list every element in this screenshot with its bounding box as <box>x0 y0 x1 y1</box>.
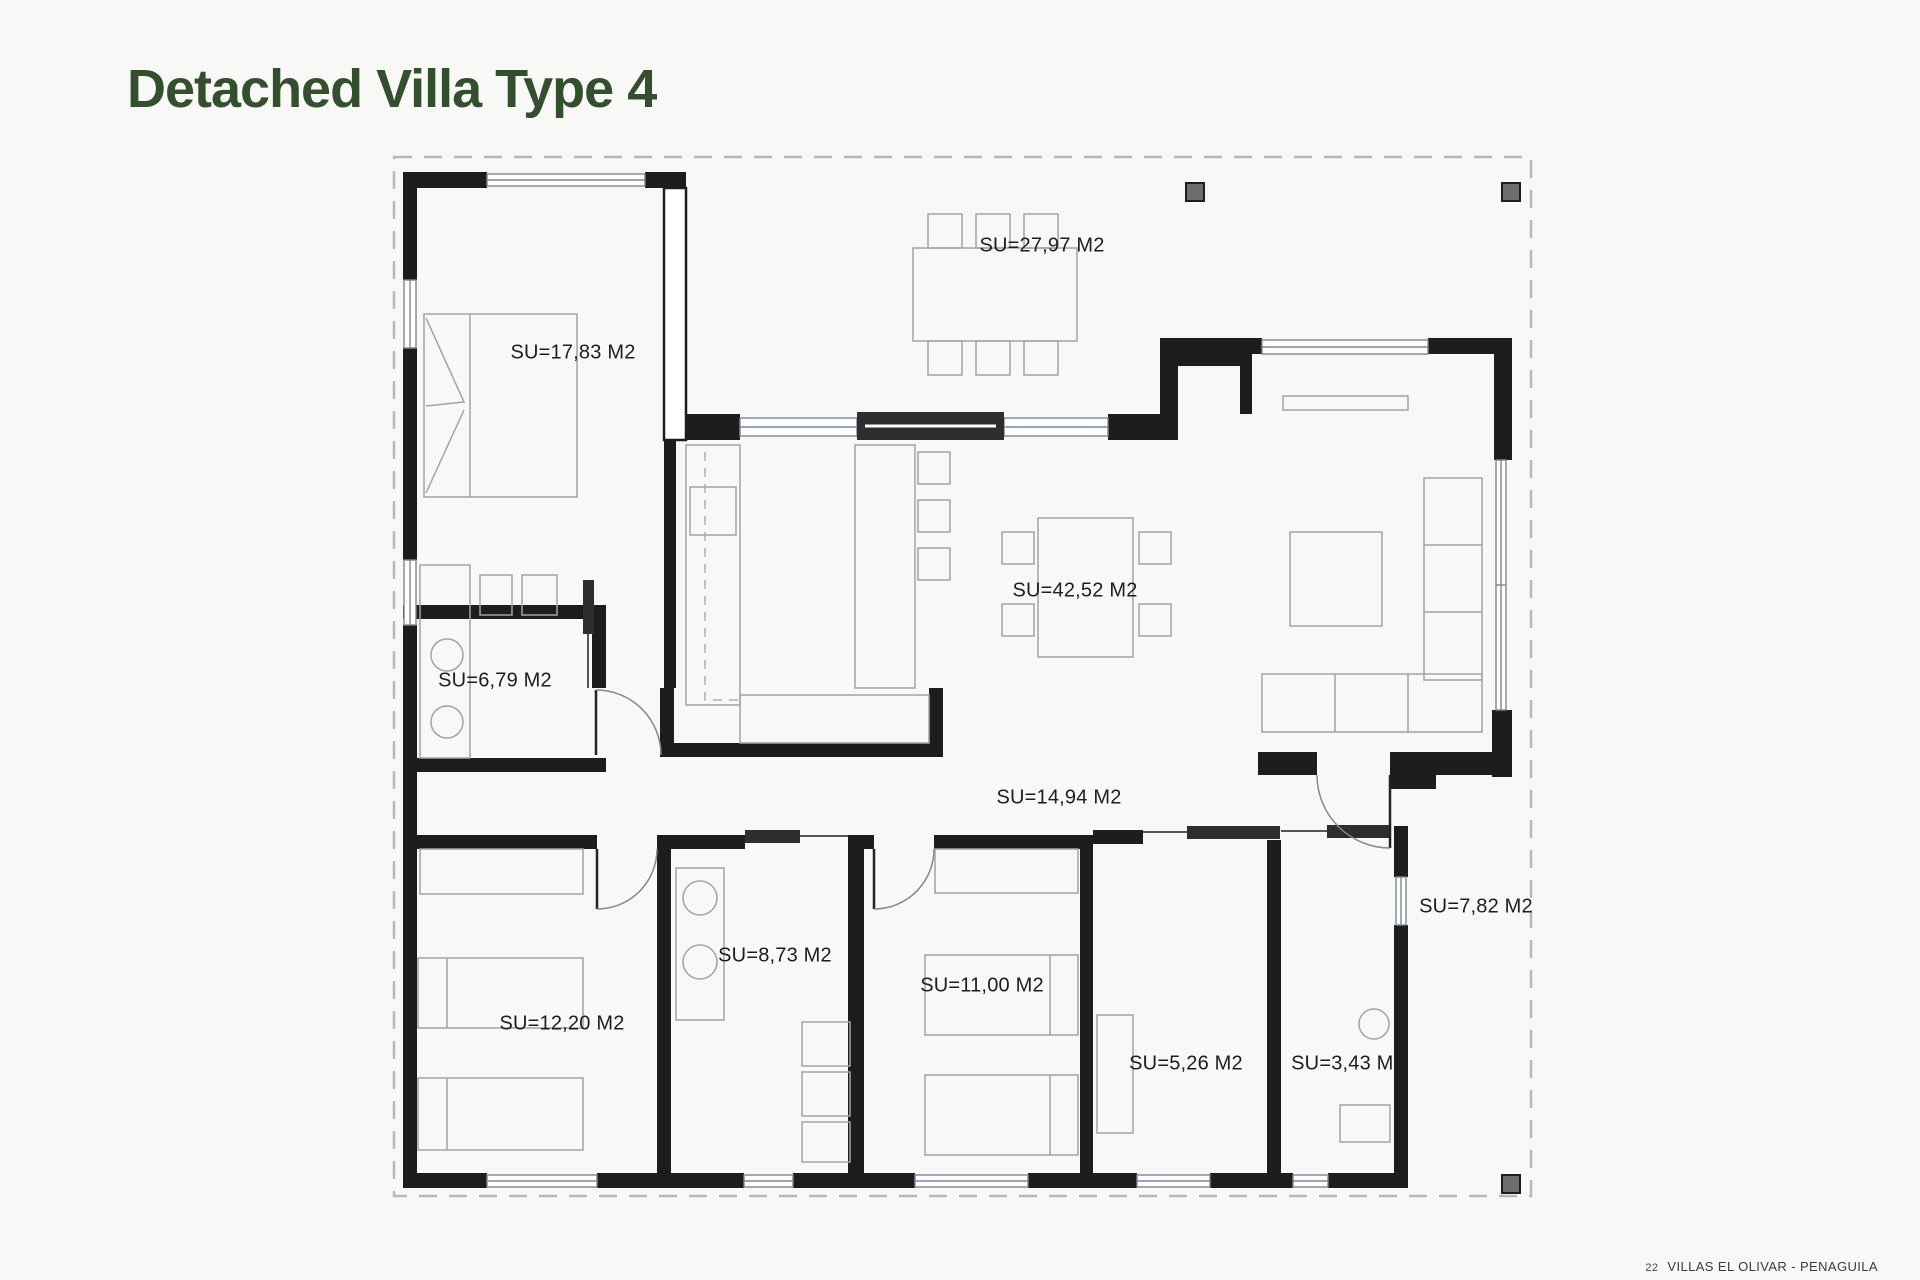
sink-icon <box>683 881 717 915</box>
cabinet-dashed-line <box>705 452 740 700</box>
window-icon <box>487 174 645 186</box>
window-icon <box>1004 418 1108 436</box>
wardrobe <box>420 849 583 894</box>
tv-console <box>1283 396 1408 410</box>
room-label-dressing-room: SU=5,26 M2 <box>1129 1053 1243 1076</box>
structural-columns <box>1186 183 1520 1193</box>
floor-plan-drawing <box>0 0 1920 1280</box>
window-icon <box>404 560 416 625</box>
sink-icon <box>1340 1105 1390 1142</box>
washing-machine-icon <box>431 706 463 738</box>
interior-walls <box>403 440 1408 1173</box>
bedroom-3-furniture <box>418 849 583 1150</box>
laundry-furniture <box>420 565 470 758</box>
wardrobe <box>935 849 1078 893</box>
window-icon <box>1396 877 1406 925</box>
toilet-icon <box>683 945 717 979</box>
window-icon <box>404 280 416 348</box>
plot-boundary-dashed <box>394 157 1531 1196</box>
column-icon <box>1502 1175 1520 1193</box>
toilet-icon <box>1359 1009 1389 1039</box>
chair <box>1139 604 1171 636</box>
coffee-table <box>1290 532 1382 626</box>
fridge <box>690 487 736 535</box>
room-label-bathroom-1: SU=8,73 M2 <box>718 945 832 968</box>
sliding-door-icon <box>1327 825 1390 838</box>
room-label-master-bedroom: SU=17,83 M2 <box>510 342 635 365</box>
window-icon <box>1496 460 1506 710</box>
column-icon <box>1502 183 1520 201</box>
chair <box>1002 604 1034 636</box>
sofa <box>1424 478 1482 680</box>
kitchen-furniture <box>686 445 950 743</box>
counter <box>740 695 929 743</box>
room-label-living-dining: SU=42,52 M2 <box>1012 580 1137 603</box>
room-label-bathroom-2: SU=3,43 M2 <box>1291 1053 1405 1076</box>
page-number: 22 <box>1645 1262 1658 1274</box>
single-bed <box>925 1075 1078 1155</box>
room-label-bedroom-3: SU=12,20 M2 <box>499 1013 624 1036</box>
washing-machine-icon <box>431 639 463 671</box>
door-icon <box>596 690 661 755</box>
shower-tray <box>802 1022 850 1066</box>
page: Detached Villa Type 4 <box>0 0 1920 1280</box>
chair <box>928 341 962 375</box>
room-label-bedroom-2: SU=11,00 M2 <box>920 975 1044 998</box>
stool <box>918 452 950 484</box>
bathroom-2-furniture <box>1340 1009 1390 1142</box>
room-label-laundry: SU=6,79 M2 <box>438 670 552 693</box>
chair <box>1002 532 1034 564</box>
vanity-counter <box>676 868 724 1020</box>
project-name: VILLAS EL OLIVAR - PENAGUILA <box>1667 1259 1878 1274</box>
stool <box>918 548 950 580</box>
counter <box>420 565 470 758</box>
door-icon <box>597 849 657 909</box>
sliding-doors <box>583 412 1390 843</box>
kitchen-cabinet-run <box>686 445 740 705</box>
room-label-hallway: SU=14,94 M2 <box>996 787 1121 810</box>
column-icon <box>1186 183 1204 201</box>
window-icon <box>744 1175 793 1187</box>
outdoor-table <box>913 248 1077 341</box>
bathroom-1-furniture <box>676 868 850 1162</box>
sofa <box>1262 674 1482 732</box>
floor-plan: SU=17,83 M2 SU=27,97 M2 SU=42,52 M2 SU=6… <box>0 0 1920 1280</box>
window-icon <box>487 1175 597 1187</box>
hollow-wall-master-kitchen <box>664 188 686 440</box>
sliding-door-icon <box>745 830 800 843</box>
kitchen-island <box>855 445 915 688</box>
window-icon <box>1137 1175 1210 1187</box>
sliding-door-icon <box>583 580 594 634</box>
stool <box>918 500 950 532</box>
living-dining-furniture <box>1002 396 1482 732</box>
sliding-door-icon <box>1187 826 1280 839</box>
chair <box>1139 532 1171 564</box>
shower-tray <box>802 1122 850 1162</box>
room-label-porch: SU=7,82 M2 <box>1419 896 1533 919</box>
window-icon <box>915 1175 1028 1187</box>
door-icon <box>874 849 934 909</box>
dressing-room-furniture <box>1097 1015 1133 1133</box>
chair <box>1024 341 1058 375</box>
window-icon <box>1262 340 1428 354</box>
bedroom-2-furniture <box>925 849 1078 1155</box>
shower-tray <box>802 1072 850 1116</box>
chair <box>928 214 962 248</box>
chair <box>976 341 1010 375</box>
wardrobe <box>1097 1015 1133 1133</box>
footer: 22VILLAS EL OLIVAR - PENAGUILA <box>1645 1259 1878 1274</box>
window-icon <box>1293 1175 1328 1187</box>
single-bed <box>418 1078 583 1150</box>
room-label-terrace: SU=27,97 M2 <box>979 235 1104 258</box>
window-icon <box>740 418 857 436</box>
